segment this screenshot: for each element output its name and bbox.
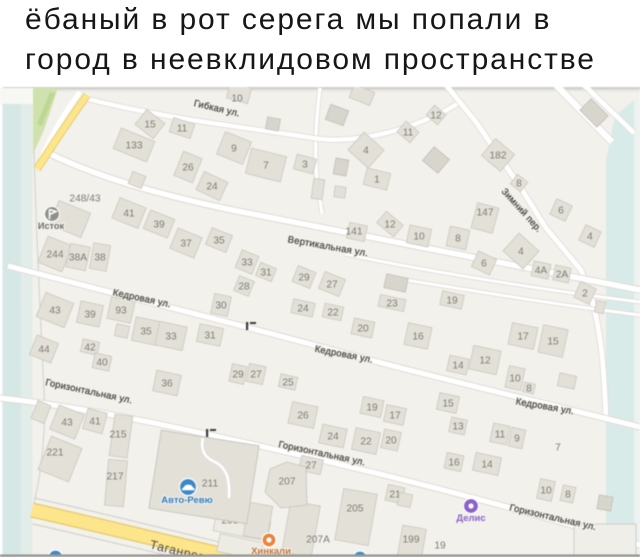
svg-text:4: 4	[363, 146, 369, 157]
svg-text:12: 12	[384, 220, 396, 231]
svg-text:12: 12	[430, 111, 442, 122]
svg-text:215: 215	[110, 430, 127, 441]
svg-text:3: 3	[302, 160, 308, 171]
svg-text:9: 9	[231, 144, 237, 155]
svg-text:Исток: Исток	[38, 221, 65, 231]
svg-text:141: 141	[346, 227, 363, 238]
svg-text:31: 31	[260, 268, 272, 279]
svg-text:41: 41	[123, 209, 135, 220]
svg-text:10: 10	[509, 374, 521, 385]
svg-text:14: 14	[452, 361, 464, 372]
svg-text:29: 29	[232, 370, 244, 381]
svg-text:4: 4	[518, 247, 524, 258]
svg-text:15: 15	[144, 120, 156, 131]
svg-text:93: 93	[115, 306, 127, 317]
svg-text:9: 9	[514, 434, 520, 445]
svg-text:37: 37	[180, 239, 192, 250]
svg-text:17: 17	[517, 332, 529, 343]
svg-text:26: 26	[182, 163, 194, 174]
svg-text:14: 14	[481, 460, 493, 471]
svg-text:22: 22	[360, 437, 372, 448]
svg-text:44: 44	[38, 345, 50, 356]
svg-text:35: 35	[213, 236, 225, 247]
svg-text:2А: 2А	[556, 270, 569, 281]
svg-text:11: 11	[495, 430, 506, 441]
svg-text:19: 19	[446, 296, 458, 307]
svg-text:43: 43	[61, 418, 73, 429]
svg-text:244: 244	[47, 250, 64, 261]
svg-text:207А: 207А	[306, 535, 330, 546]
svg-text:33: 33	[241, 258, 253, 269]
svg-text:4А: 4А	[535, 266, 548, 277]
svg-text:16: 16	[412, 332, 424, 343]
svg-text:35: 35	[140, 327, 152, 338]
svg-text:26: 26	[297, 411, 309, 422]
svg-text:8: 8	[455, 234, 461, 245]
svg-text:33: 33	[165, 332, 177, 343]
svg-text:38: 38	[94, 253, 106, 264]
svg-text:10: 10	[231, 94, 243, 105]
svg-text:10: 10	[413, 232, 425, 243]
svg-text:12: 12	[479, 356, 491, 367]
svg-text:Авто-Ревю: Авто-Ревю	[161, 495, 212, 506]
svg-text:43: 43	[49, 306, 61, 317]
svg-text:41: 41	[89, 417, 101, 428]
svg-text:42: 42	[84, 343, 96, 354]
svg-text:39: 39	[153, 220, 165, 231]
svg-text:4: 4	[587, 232, 593, 243]
svg-text:30: 30	[215, 301, 227, 312]
svg-text:15: 15	[547, 337, 559, 348]
svg-text:19: 19	[366, 403, 378, 414]
svg-text:27: 27	[305, 461, 317, 472]
svg-text:8: 8	[565, 490, 571, 501]
svg-text:19: 19	[434, 541, 446, 552]
svg-text:11: 11	[403, 128, 414, 139]
svg-text:Делис: Делис	[456, 513, 485, 524]
svg-text:39: 39	[84, 310, 96, 321]
svg-text:1: 1	[374, 175, 380, 186]
svg-text:7: 7	[555, 443, 561, 454]
svg-text:221: 221	[47, 448, 64, 459]
svg-text:13: 13	[452, 422, 464, 433]
svg-text:8: 8	[516, 179, 522, 190]
svg-text:25: 25	[282, 378, 294, 389]
svg-text:211: 211	[202, 479, 219, 490]
svg-text:8: 8	[526, 384, 532, 395]
svg-text:36: 36	[161, 379, 173, 390]
svg-text:147: 147	[477, 208, 494, 219]
svg-text:24: 24	[327, 432, 339, 443]
svg-text:205: 205	[347, 504, 364, 515]
svg-text:23: 23	[386, 299, 398, 310]
svg-text:24: 24	[297, 304, 309, 315]
svg-text:11: 11	[177, 124, 188, 135]
svg-text:31: 31	[204, 331, 216, 342]
svg-text:38А: 38А	[69, 253, 87, 264]
svg-text:20: 20	[357, 324, 369, 335]
svg-text:20: 20	[385, 436, 397, 447]
svg-text:22: 22	[327, 308, 339, 319]
svg-text:6: 6	[481, 259, 487, 270]
svg-text:27: 27	[326, 280, 338, 291]
svg-text:2: 2	[582, 289, 588, 300]
svg-text:133: 133	[126, 141, 143, 152]
svg-text:29: 29	[298, 273, 310, 284]
svg-text:27: 27	[250, 370, 262, 381]
svg-text:40: 40	[96, 358, 108, 369]
svg-text:10: 10	[540, 486, 552, 497]
svg-text:248/43: 248/43	[69, 194, 100, 205]
svg-text:15: 15	[442, 399, 454, 410]
svg-text:16: 16	[448, 458, 460, 469]
svg-text:6: 6	[558, 206, 564, 217]
svg-text:217: 217	[107, 472, 124, 483]
svg-text:28: 28	[238, 282, 250, 293]
svg-text:7: 7	[263, 161, 269, 172]
svg-text:199: 199	[403, 535, 420, 546]
svg-text:207: 207	[279, 477, 296, 488]
svg-text:182: 182	[490, 151, 507, 162]
svg-text:17: 17	[389, 411, 401, 422]
svg-text:24: 24	[206, 182, 218, 193]
